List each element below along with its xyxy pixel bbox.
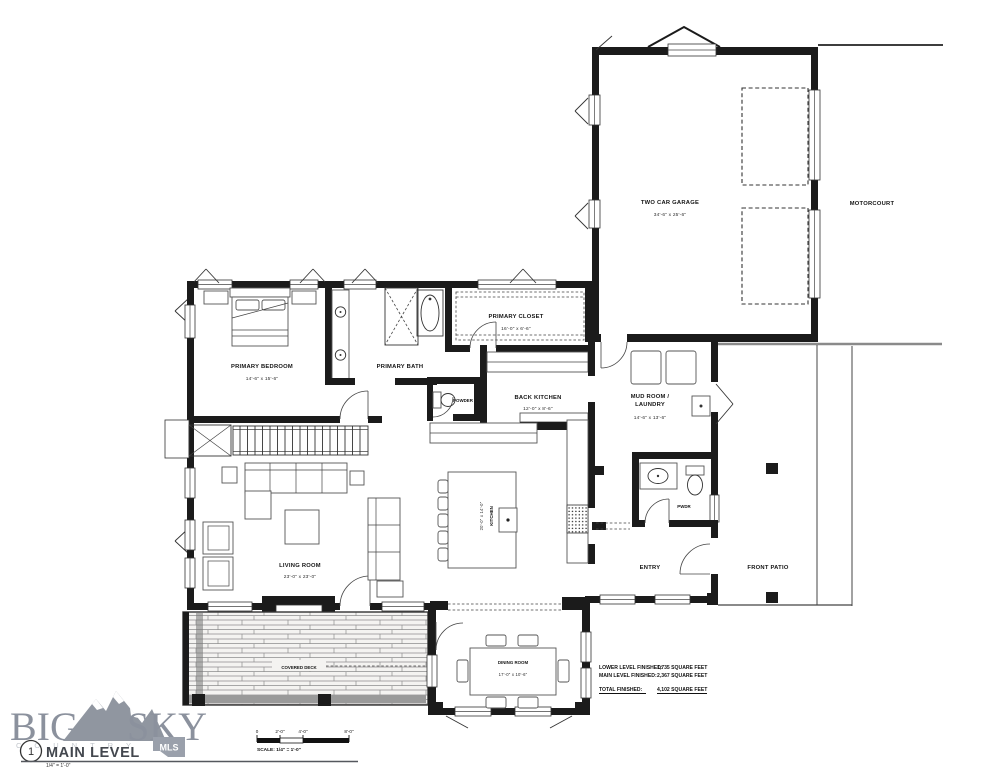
living-room: LIVING ROOM 23'-0" x 23'-0" xyxy=(203,463,403,597)
scale-tick-0: 0 xyxy=(256,729,259,734)
scale-tick-1: 2'-0" xyxy=(275,729,285,734)
front-patio: FRONT PATIO xyxy=(718,345,852,606)
front-patio-label: FRONT PATIO xyxy=(747,565,788,571)
primary-closet-dims: 16'-0" x 6'-6" xyxy=(501,326,531,332)
primary-bedroom-label: PRIMARY BEDROOM xyxy=(231,364,293,370)
mud-room-label-2: LAUNDRY xyxy=(635,402,665,408)
powder-label: POWDER xyxy=(453,398,474,403)
scale-bar: 0 2'-0" 4'-0" 8'-0" SCALE: 1/4" = 1'-0" xyxy=(256,729,354,753)
back-kitchen-label: BACK KITCHEN xyxy=(514,395,561,401)
area-row-label: LOWER LEVEL FINISHED: xyxy=(599,665,663,671)
mud-room-label-1: MUD ROOM / xyxy=(631,394,670,400)
back-kitchen-dims: 12'-0" x 8'-6" xyxy=(523,406,553,412)
sheet-number: 1 xyxy=(28,746,34,758)
primary-bedroom: PRIMARY BEDROOM 14'-6" x 15'-6" xyxy=(194,288,382,423)
entry-label: ENTRY xyxy=(640,565,661,571)
mud-room-laundry: MUD ROOM / LAUNDRY 14'-6" x 13'-6" xyxy=(588,341,718,564)
dining-room-label: DINING ROOM xyxy=(498,660,529,665)
area-summary: LOWER LEVEL FINISHED: 1,735 SQUARE FEET … xyxy=(599,665,708,694)
primary-closet-label: PRIMARY CLOSET xyxy=(488,314,543,320)
sheet-title: MAIN LEVEL xyxy=(46,745,140,761)
area-row-value: 4,102 SQUARE FEET xyxy=(657,687,708,693)
primary-bath-label: PRIMARY BATH xyxy=(377,364,424,370)
scale-bar-caption: SCALE: 1/4" = 1'-0" xyxy=(257,747,301,753)
entry: ENTRY xyxy=(596,523,660,571)
floor-plan-canvas: MOTORCOURT TWO CAR GARAGE 34'-6" x 25'-6… xyxy=(0,0,1004,768)
motorcourt-label: MOTORCOURT xyxy=(850,201,895,207)
kitchen-dims: 20'-0" x 14'-0" xyxy=(479,501,484,530)
area-row-value: 2,367 SQUARE FEET xyxy=(657,673,708,679)
garage: TWO CAR GARAGE 34'-6" x 25'-6" xyxy=(575,27,820,368)
primary-bath: PRIMARY BATH xyxy=(325,281,443,385)
living-room-dims: 23'-0" x 23'-0" xyxy=(284,574,317,580)
kitchen: KITCHEN 20'-0" x 14'-0" xyxy=(430,420,588,568)
living-room-label: LIVING ROOM xyxy=(279,563,321,569)
area-row-label: MAIN LEVEL FINISHED: xyxy=(599,673,657,679)
scale-tick-3: 8'-0" xyxy=(344,729,354,734)
garage-dims: 34'-6" x 25'-6" xyxy=(654,212,687,218)
mud-room-dims: 14'-6" x 13'-6" xyxy=(634,415,667,421)
garage-label: TWO CAR GARAGE xyxy=(641,200,699,206)
motorcourt: MOTORCOURT xyxy=(718,45,943,344)
covered-deck: COVERED DECK xyxy=(183,612,428,706)
pwdr-room: PWDR xyxy=(632,452,718,527)
primary-closet: PRIMARY CLOSET 16'-0" x 6'-6" xyxy=(445,281,592,352)
sheet-scale-note: 1/4" = 1'-0" xyxy=(46,763,71,768)
area-row-label: TOTAL FINISHED: xyxy=(599,687,643,693)
pwdr-label: PWDR xyxy=(677,504,691,509)
primary-bedroom-dims: 14'-6" x 15'-6" xyxy=(246,376,279,382)
scale-tick-2: 4'-0" xyxy=(298,729,308,734)
stairs xyxy=(189,425,368,456)
dining-room: DINING ROOM 17'-0" x 10'-6" xyxy=(427,610,591,728)
covered-deck-label: COVERED DECK xyxy=(281,665,317,670)
back-kitchen: BACK KITCHEN 12'-0" x 8'-6" xyxy=(480,345,592,430)
mls-badge-text: MLS xyxy=(160,743,179,753)
mls-badge: MLS xyxy=(153,737,185,757)
powder-room: POWDER xyxy=(427,377,480,421)
floor-plan-sheet: MOTORCOURT TWO CAR GARAGE 34'-6" x 25'-6… xyxy=(0,0,1004,768)
dining-room-dims: 17'-0" x 10'-6" xyxy=(499,672,528,677)
kitchen-label: KITCHEN xyxy=(489,506,494,526)
area-row-value: 1,735 SQUARE FEET xyxy=(657,665,708,671)
